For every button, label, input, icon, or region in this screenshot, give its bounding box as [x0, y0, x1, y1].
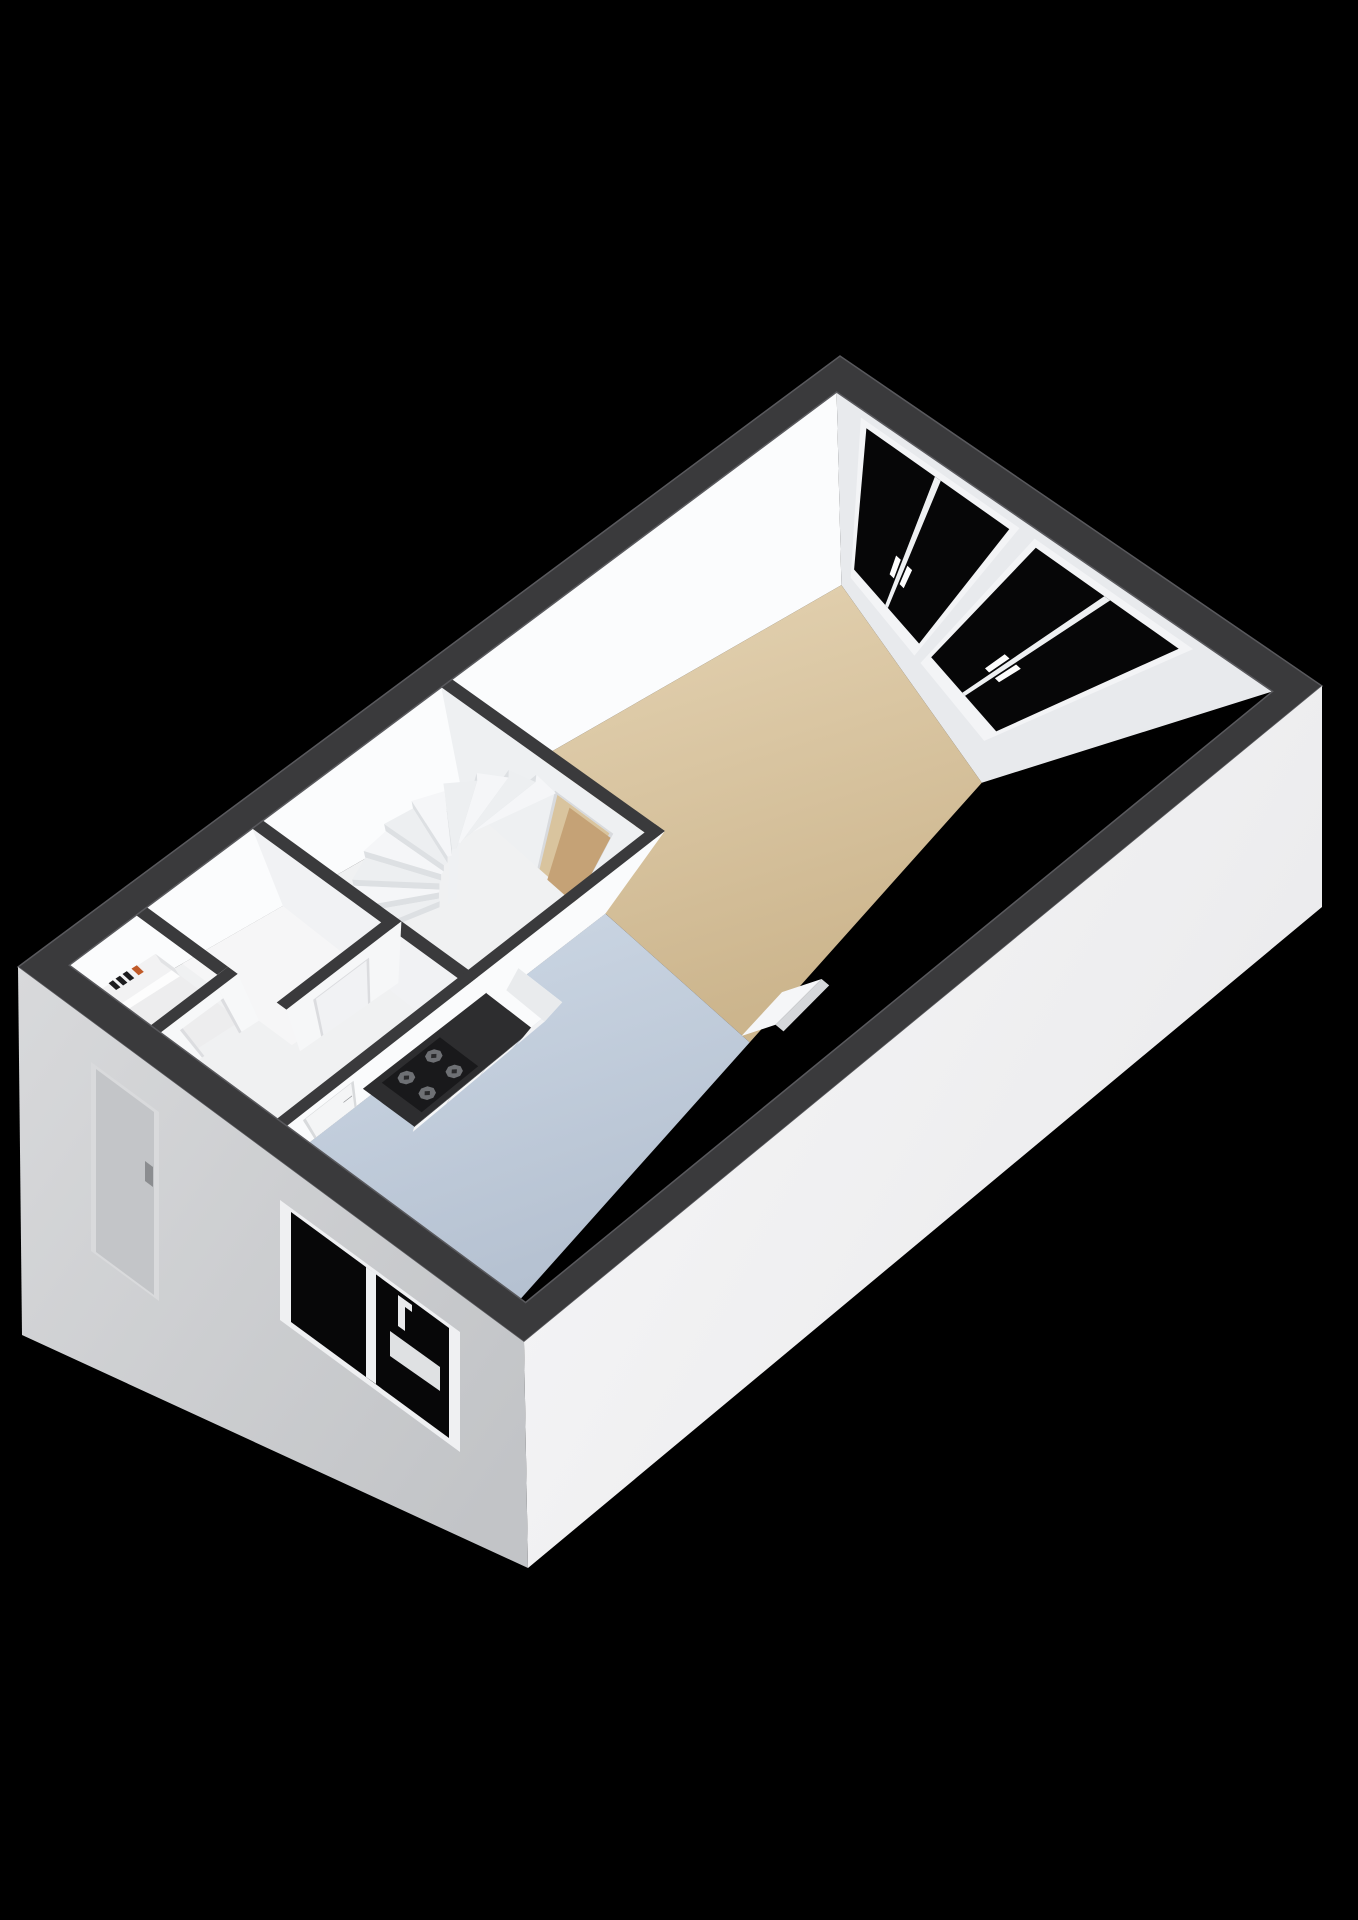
- hob-burner-3-cap: [431, 1054, 436, 1058]
- hob-burner-2-cap: [425, 1091, 430, 1095]
- hob-burner-4-cap: [452, 1069, 457, 1073]
- floorplan-viewport: [0, 0, 1358, 1920]
- hob-burner-1-cap: [404, 1076, 409, 1080]
- kitchen-window-mullion: [366, 1267, 376, 1384]
- floorplan-3d-render: [0, 0, 1358, 1920]
